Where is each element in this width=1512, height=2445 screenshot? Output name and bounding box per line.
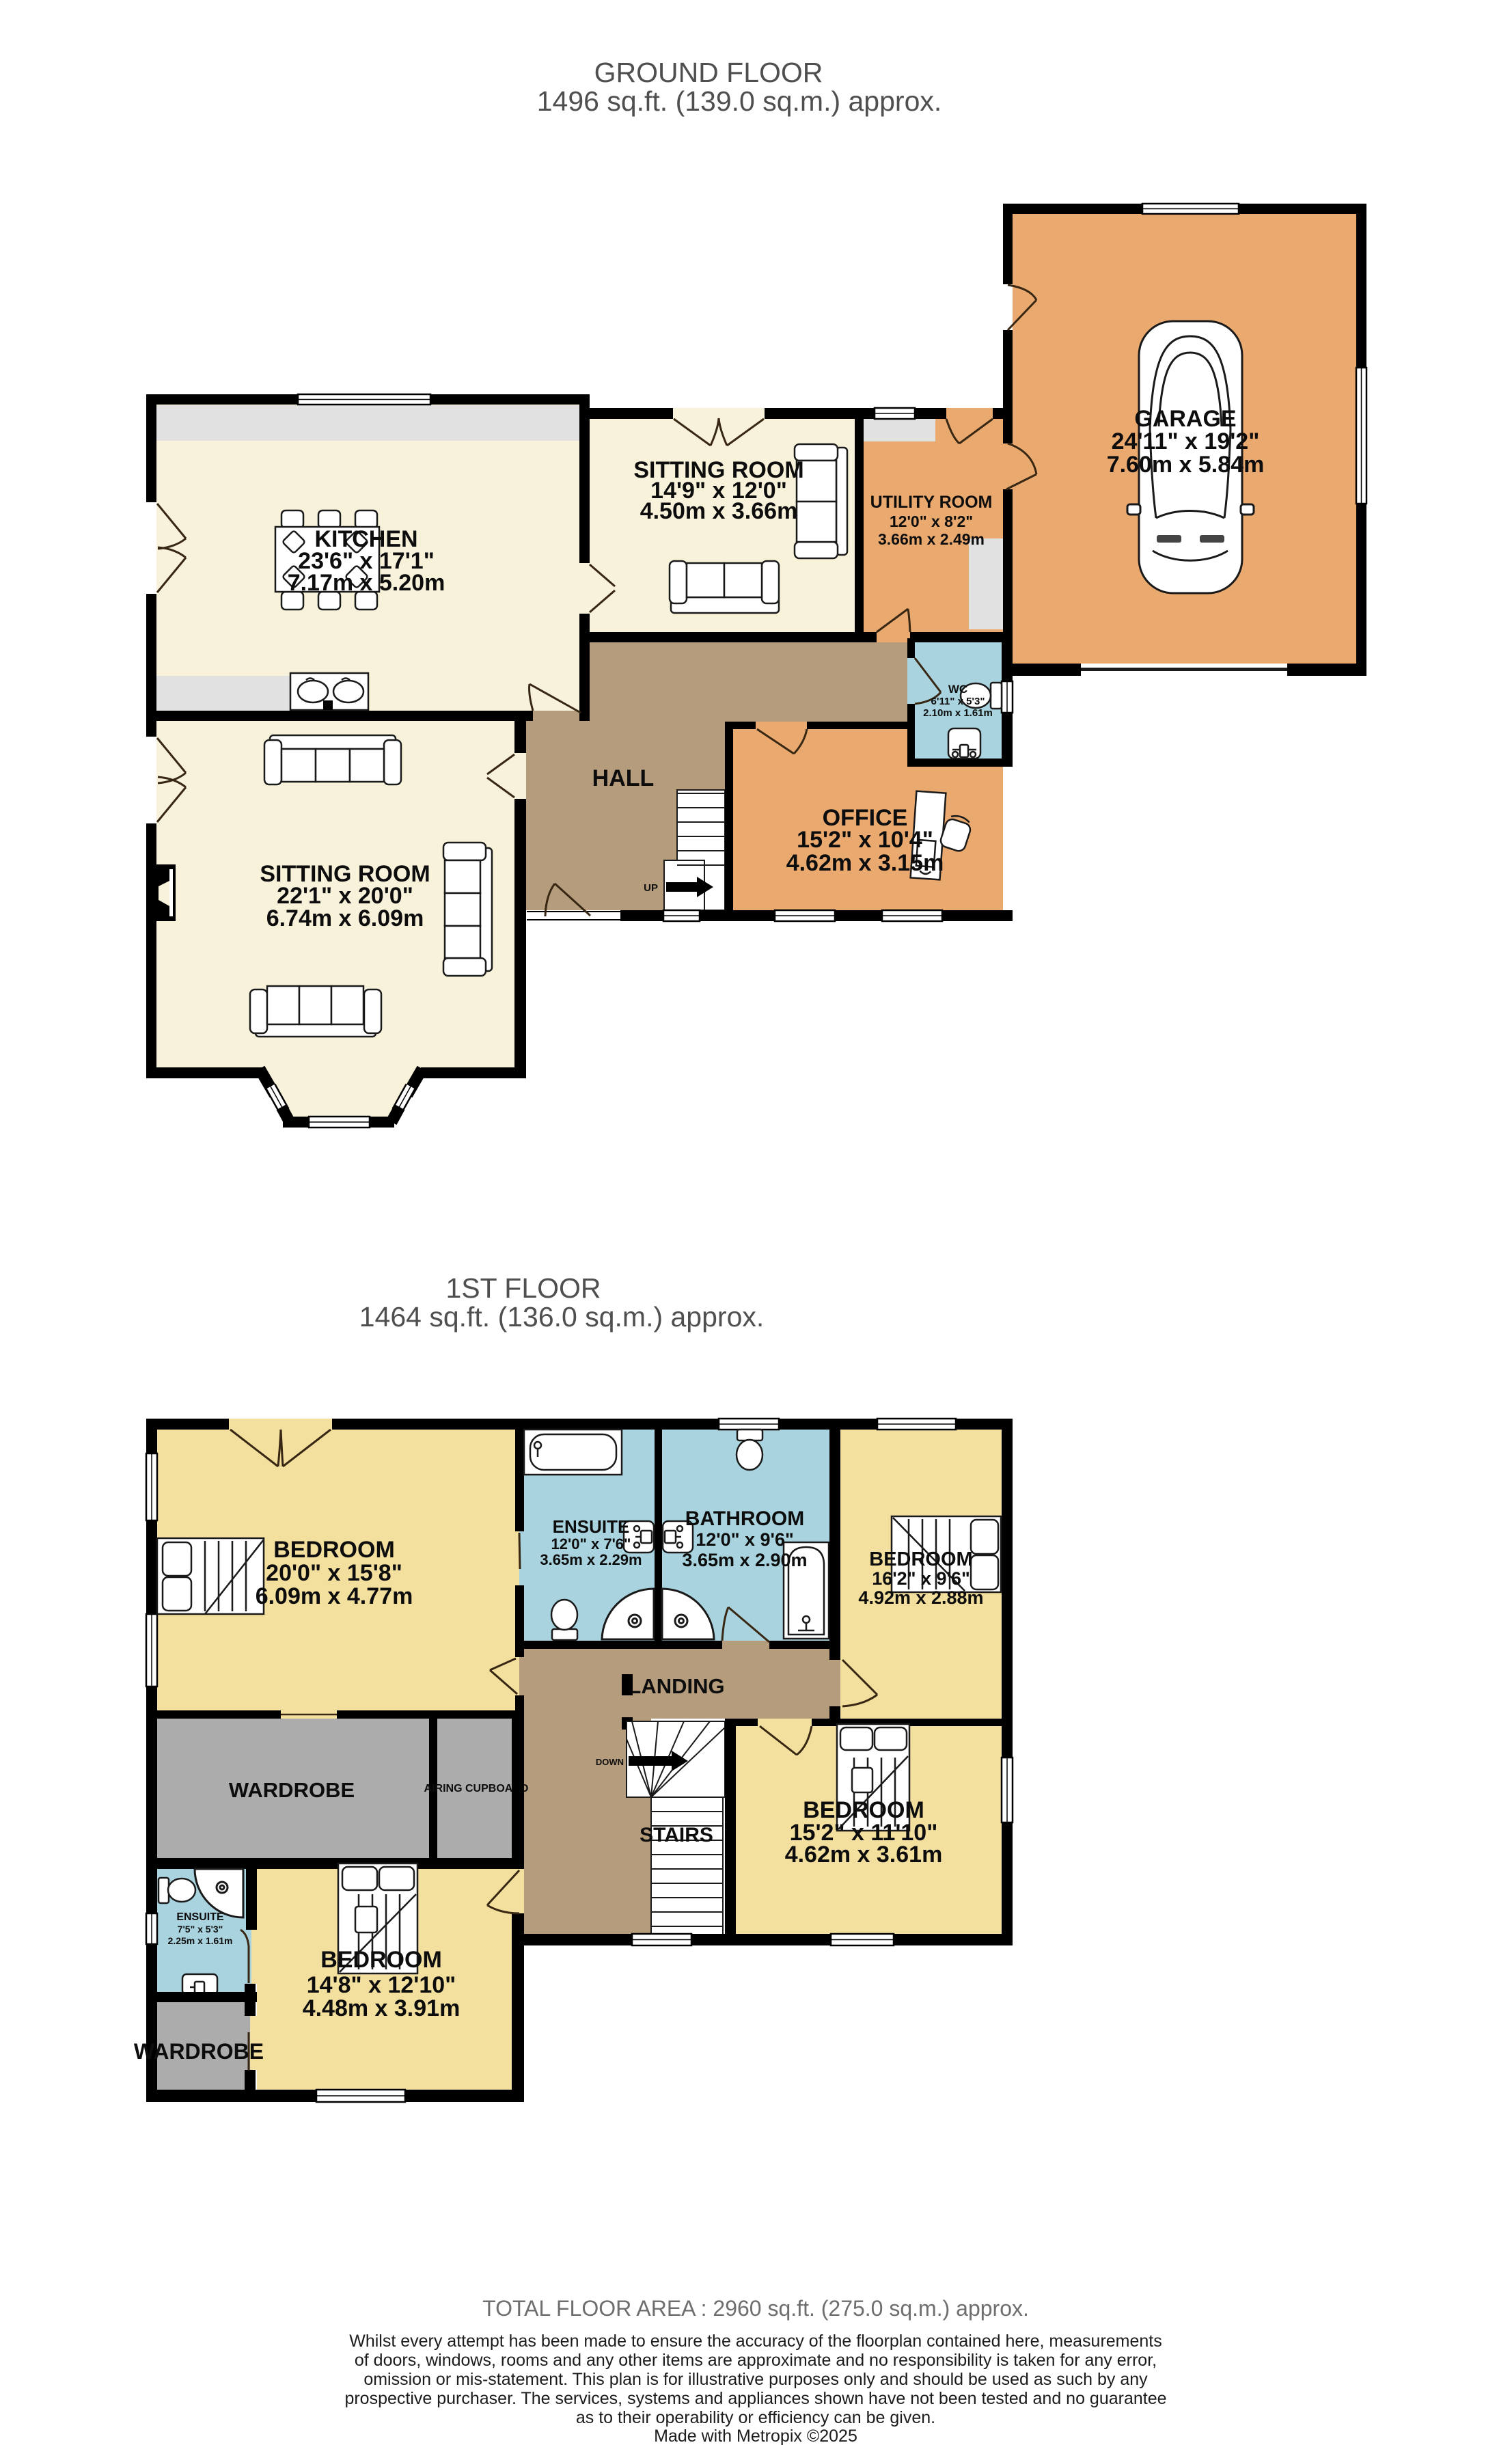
svg-text:15'2" x 10'4": 15'2" x 10'4" [797, 827, 933, 853]
svg-text:2.25m x 1.61m: 2.25m x 1.61m [168, 1935, 233, 1946]
svg-text:6'11" x 5'3": 6'11" x 5'3" [931, 696, 985, 707]
svg-text:2.10m x 1.61m: 2.10m x 1.61m [923, 707, 993, 719]
svg-text:LANDING: LANDING [628, 1674, 724, 1698]
svg-text:GROUND FLOOR: GROUND FLOOR [594, 57, 823, 88]
svg-text:4.48m x 3.91m: 4.48m x 3.91m [303, 1995, 461, 2021]
svg-text:12'0" x 9'6": 12'0" x 9'6" [696, 1529, 794, 1550]
svg-text:4.62m x 3.15m: 4.62m x 3.15m [786, 850, 944, 876]
svg-text:14'8" x 12'10": 14'8" x 12'10" [307, 1972, 456, 1998]
svg-text:UTILITY ROOM: UTILITY ROOM [870, 493, 993, 512]
svg-text:3.66m x 2.49m: 3.66m x 2.49m [878, 530, 985, 548]
svg-text:1496 sq.ft. (139.0 sq.m.) appr: 1496 sq.ft. (139.0 sq.m.) approx. [537, 85, 942, 117]
svg-text:12'0" x 7'6": 12'0" x 7'6" [551, 1535, 631, 1553]
svg-text:DOWN: DOWN [596, 1757, 624, 1767]
svg-text:12'0" x 8'2": 12'0" x 8'2" [890, 513, 973, 530]
svg-text:ENSUITE: ENSUITE [176, 1911, 224, 1923]
svg-text:1464 sq.ft. (136.0 sq.m.) appr: 1464 sq.ft. (136.0 sq.m.) approx. [359, 1301, 765, 1333]
svg-text:4.50m x 3.66m: 4.50m x 3.66m [640, 498, 798, 524]
svg-text:7.60m x 5.84m: 7.60m x 5.84m [1107, 452, 1265, 478]
svg-text:UP: UP [644, 882, 658, 894]
svg-text:3.65m x 2.29m: 3.65m x 2.29m [540, 1551, 642, 1568]
svg-text:of doors, windows, rooms and a: of doors, windows, rooms and any other i… [355, 2351, 1157, 2370]
svg-text:Made with Metropix ©2025: Made with Metropix ©2025 [654, 2427, 857, 2445]
svg-text:BEDROOM: BEDROOM [273, 1537, 395, 1563]
svg-text:1ST FLOOR: 1ST FLOOR [445, 1272, 601, 1304]
svg-text:ENSUITE: ENSUITE [553, 1516, 630, 1537]
svg-text:WARDROBE: WARDROBE [229, 1778, 355, 1802]
svg-text:HALL: HALL [592, 765, 655, 791]
svg-text:4.92m x 2.88m: 4.92m x 2.88m [858, 1587, 983, 1608]
svg-text:4.62m x 3.61m: 4.62m x 3.61m [785, 1842, 943, 1868]
svg-text:omission or mis-statement. Thi: omission or mis-statement. This plan is … [363, 2370, 1148, 2389]
svg-text:WC: WC [948, 683, 967, 696]
svg-text:7'5" x 5'3": 7'5" x 5'3" [178, 1924, 223, 1935]
svg-text:BEDROOM: BEDROOM [320, 1947, 442, 1973]
svg-text:3.65m x 2.90m: 3.65m x 2.90m [682, 1550, 807, 1570]
svg-text:7.17m x 5.20m: 7.17m x 5.20m [288, 570, 445, 596]
svg-text:24'11" x 19'2": 24'11" x 19'2" [1112, 428, 1260, 454]
svg-text:16'2" x 9'6": 16'2" x 9'6" [872, 1568, 970, 1589]
svg-text:6.74m x 6.09m: 6.74m x 6.09m [266, 905, 424, 931]
svg-text:STAIRS: STAIRS [640, 1824, 713, 1846]
svg-text:WARDROBE: WARDROBE [134, 2039, 264, 2064]
svg-text:as to their operability or eff: as to their operability or efficiency ca… [576, 2408, 935, 2427]
svg-text:BATHROOM: BATHROOM [685, 1507, 804, 1530]
svg-text:Whilst every attempt has been: Whilst every attempt has been made to en… [349, 2332, 1162, 2351]
svg-text:prospective purchaser. The ser: prospective purchaser. The services, sys… [344, 2389, 1166, 2408]
svg-text:6.09m x 4.77m: 6.09m x 4.77m [256, 1583, 413, 1609]
svg-text:20'0" x 15'8": 20'0" x 15'8" [266, 1560, 402, 1586]
svg-text:BEDROOM: BEDROOM [869, 1548, 972, 1570]
svg-text:TOTAL FLOOR AREA : 2960 sq.ft.: TOTAL FLOOR AREA : 2960 sq.ft. (275.0 sq… [482, 2296, 1029, 2321]
